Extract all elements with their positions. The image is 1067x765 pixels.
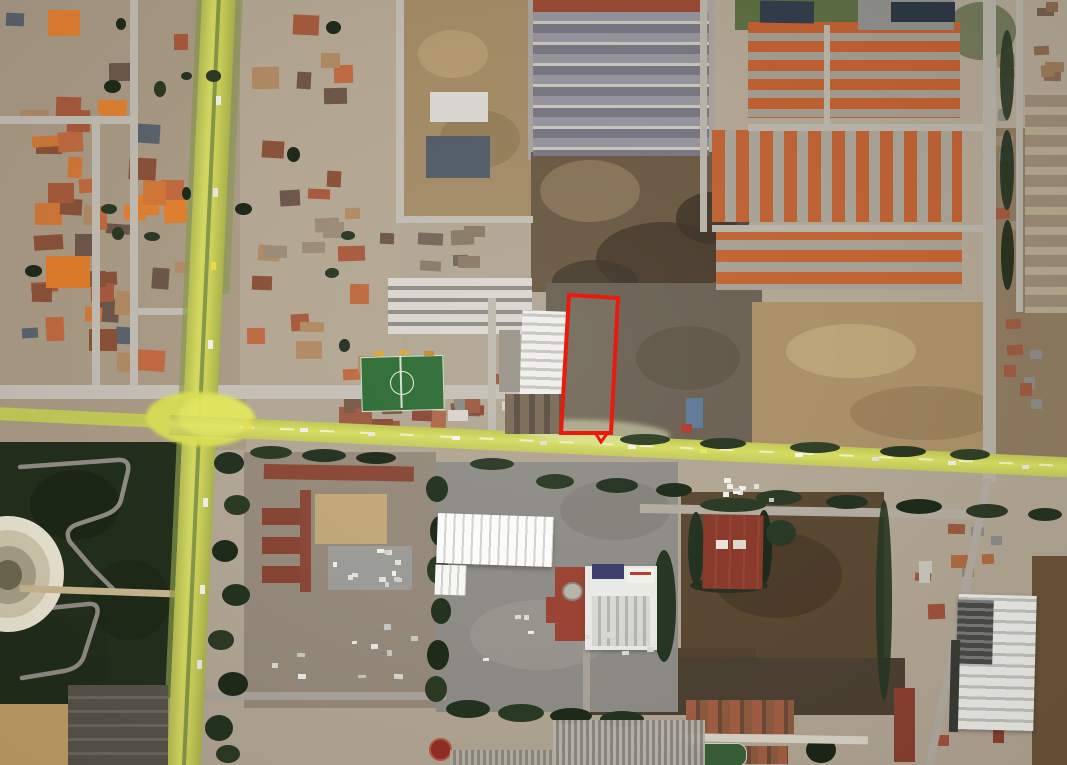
ground-nw <box>0 0 246 450</box>
cars-lot-item <box>607 632 615 638</box>
vehicle <box>243 424 252 429</box>
tree-clump <box>688 512 704 584</box>
tree-clump <box>620 434 670 445</box>
street-e-v1 <box>983 0 996 482</box>
houses-e-2-item <box>918 569 929 583</box>
street-ne-v2 <box>824 25 830 127</box>
blvd-v-east-strip <box>222 0 243 294</box>
trees-nw-scatter-item <box>144 232 160 242</box>
houses-nw-item <box>20 109 49 122</box>
trees-nw-scatter-item <box>339 339 351 352</box>
houses-se-street-item <box>962 635 980 643</box>
houses-nw-item <box>151 267 169 289</box>
houses-e-2-item <box>919 561 932 574</box>
field-se-plowed-ext <box>636 648 756 712</box>
brick-construction-row <box>686 700 794 734</box>
vehicle <box>628 445 636 449</box>
plowed-top-light <box>540 160 640 222</box>
houses-ne-corner-item <box>1045 62 1064 72</box>
tree-clump <box>756 510 772 584</box>
houses-e-1-item <box>1030 399 1041 410</box>
rowhouses-orange-c <box>716 228 962 290</box>
trees-nw-scatter-item <box>116 18 127 30</box>
trees-nw-scatter-item <box>206 70 222 82</box>
street-nc-v <box>396 0 404 222</box>
houses-se-street-item <box>972 707 987 723</box>
store-sign-red-text <box>630 572 651 575</box>
tree-clump <box>446 700 490 718</box>
blvd-v-west-strip <box>161 0 202 765</box>
houses-nw-item <box>89 329 117 351</box>
houses-field-south-item <box>464 226 485 237</box>
cars-school-parking-item <box>395 560 402 565</box>
cars-hacienda-item <box>727 484 733 489</box>
cars-school-parking-item <box>352 572 358 576</box>
trees-nw-scatter-item <box>104 80 122 93</box>
soccer-midline <box>399 357 402 408</box>
warehouse-annex <box>434 564 466 595</box>
houses-ncenter-item <box>280 189 301 206</box>
houses-ne-corner-item <box>1034 45 1049 55</box>
tree-clump <box>700 438 746 449</box>
street-e-v2 <box>1016 0 1023 312</box>
tree-clump <box>250 446 292 459</box>
houses-nw-item <box>35 203 62 225</box>
vehicle <box>540 441 547 445</box>
houses-ncenter-item <box>291 313 309 331</box>
houses-ncenter-item <box>314 218 339 233</box>
field-mid-tan-dark <box>850 386 1000 440</box>
houses-ne-corner-item <box>1040 65 1054 78</box>
street-nw-v2 <box>130 0 138 394</box>
bldg-orange-nw-1 <box>48 10 80 36</box>
houses-nw-item <box>135 349 165 372</box>
houses-e-2-item <box>981 553 993 563</box>
trees-nw-scatter-item <box>181 72 192 81</box>
trees-nw-scatter-item <box>182 187 192 201</box>
houses-ncenter-item <box>324 88 347 104</box>
houses-ncenter-item <box>358 356 380 374</box>
stadium-core <box>0 560 22 590</box>
cars-bottom-lot-item <box>384 624 391 630</box>
houses-nw-item <box>67 109 91 132</box>
sheds-dark <box>505 394 563 434</box>
houses-ncenter-item <box>323 222 344 238</box>
blvd-vertical <box>166 0 236 765</box>
houses-nw-item <box>143 180 166 204</box>
cars-lot-item <box>585 635 591 639</box>
trees-nw-scatter-item <box>25 265 42 277</box>
bldg-orange-nw-2 <box>46 256 90 288</box>
houses-blvd-strip-item <box>385 420 401 432</box>
store-sign-blue <box>592 564 624 579</box>
houses-nw-item <box>22 327 39 338</box>
vehicle <box>948 461 956 465</box>
cars-hacienda-item <box>733 488 740 491</box>
plowed-top-dark2 <box>676 192 750 244</box>
vehicle <box>872 457 879 461</box>
tree-clump <box>427 556 449 584</box>
street-parcel-v <box>488 298 496 436</box>
trees-nw-scatter-item <box>153 81 166 97</box>
school-bar-mid <box>300 490 311 592</box>
vehicle <box>200 585 205 594</box>
forest-shade-2 <box>90 560 170 640</box>
intersection-glow <box>178 396 252 438</box>
houses-nw-item <box>91 288 114 303</box>
tree-clump <box>826 495 868 509</box>
street-s-h <box>100 692 446 700</box>
street-main-gray <box>0 385 532 399</box>
cars-bottom-lot-item <box>394 674 403 680</box>
rowhouses-gray <box>533 12 709 156</box>
cars-school-parking-item <box>394 577 400 581</box>
store-ribs <box>592 596 650 646</box>
tree-clump <box>470 458 514 470</box>
cars-bottom-lot-item <box>297 653 305 657</box>
houses-blvd-strip-item <box>371 418 393 432</box>
bldg-navy-1 <box>760 1 814 24</box>
cars-hacienda-item <box>723 492 729 497</box>
houses-blvd-strip-item <box>412 410 432 422</box>
map-canvas[interactable] <box>0 0 1067 765</box>
cars-hacienda-item <box>754 484 759 489</box>
tree-clump <box>550 708 592 724</box>
houses-ncenter-item <box>343 369 360 380</box>
tree-clump <box>224 495 250 515</box>
houses-nw-item <box>91 206 107 230</box>
blvd-h-left <box>0 407 164 428</box>
houses-field-south-item <box>458 256 480 268</box>
houses-field-south-item <box>453 255 468 266</box>
street-nw-v1 <box>92 116 100 392</box>
soccer-field <box>360 355 444 412</box>
tree-clump <box>1000 30 1014 120</box>
houses-nw-item <box>101 102 126 121</box>
forest-shade-1 <box>30 470 120 540</box>
soccer-goal-mark <box>399 350 409 355</box>
houses-ncenter-item <box>261 140 284 159</box>
tree-clump <box>431 598 451 624</box>
mound-ne <box>946 2 1016 60</box>
cars-hacienda-item <box>769 497 774 502</box>
houses-nw-item <box>133 195 160 215</box>
school-bar <box>262 508 300 525</box>
sheds-sw-item <box>143 740 160 756</box>
store-red-roof <box>555 567 593 641</box>
rowhouses-red-strip <box>533 0 705 12</box>
bldg-red-small <box>681 424 692 433</box>
tree-clump <box>214 452 244 474</box>
houses-nw-item <box>31 282 59 294</box>
houses-ncenter-item <box>308 188 331 199</box>
tree-clump <box>208 630 234 650</box>
tree-clump <box>600 711 644 727</box>
cars-lot-item <box>524 615 529 620</box>
street-nw-h1 <box>0 116 136 124</box>
houses-blvd-strip-item <box>451 402 467 415</box>
vehicle <box>700 449 707 453</box>
houses-near-soccer-item <box>503 381 522 397</box>
plowed-field-top <box>531 152 737 292</box>
tree-clump <box>766 520 796 546</box>
houses-blvd-strip-item <box>338 407 358 425</box>
brick-construction-row <box>738 746 788 764</box>
houses-field-south-item <box>418 232 444 245</box>
street-nw-h2 <box>130 308 208 315</box>
stadium-path <box>20 585 178 598</box>
bldg-dark-sw <box>68 685 168 765</box>
houses-nw-item <box>108 63 137 81</box>
cars-hacienda-item <box>738 490 743 495</box>
field-mid-tan-light <box>786 324 916 378</box>
houses-near-soccer-item <box>454 392 469 408</box>
street-s-v <box>583 640 590 765</box>
sports-field-bottom <box>685 743 747 765</box>
vehicle <box>211 262 216 270</box>
street-se-diag <box>925 478 991 765</box>
houses-nw-item <box>93 298 119 322</box>
houses-nw-item <box>60 199 83 216</box>
parcel-corner-tick <box>596 434 606 442</box>
trees-nw-scatter-item <box>234 203 251 215</box>
vehicle <box>203 498 208 507</box>
cars-hacienda-item <box>724 478 731 483</box>
houses-blvd-strip-item <box>431 411 446 430</box>
market-stalls <box>450 750 554 765</box>
highlighted-parcel[interactable] <box>561 295 618 433</box>
blvd-h-dashes <box>240 426 1067 467</box>
bldg-gray-top <box>858 0 954 30</box>
cars-school-parking-item <box>385 582 390 587</box>
houses-nw-item <box>67 157 83 179</box>
houses-e-st-col-item <box>996 54 1014 68</box>
houses-e-st-col-item <box>1002 69 1015 78</box>
vehicle <box>1022 465 1029 469</box>
vehicle <box>216 96 221 105</box>
houses-nw-item <box>55 96 81 120</box>
houses-nw-item <box>161 180 185 201</box>
houses-ne-corner-item <box>1044 70 1061 81</box>
cars-hacienda-item <box>733 491 740 494</box>
houses-nw-item <box>105 223 129 235</box>
cars-bottom-lot-item <box>298 674 306 679</box>
tree-clump <box>790 442 840 453</box>
houses-se-street-item <box>948 656 963 668</box>
houses-ncenter-item <box>257 244 280 261</box>
vehicle <box>300 428 308 432</box>
vehicle <box>452 436 460 440</box>
houses-nw-item <box>90 271 106 287</box>
cars-lot-item <box>528 631 534 635</box>
school-bar <box>262 537 300 554</box>
tree-clump <box>498 704 544 722</box>
school-bar <box>262 566 300 583</box>
cars-school-parking-item <box>384 550 390 554</box>
houses-se-street-item <box>958 713 970 727</box>
bldg-navy-2 <box>891 2 955 22</box>
houses-ncenter-item <box>252 66 279 88</box>
cars-school-parking-item <box>377 549 384 554</box>
park-ne <box>735 0 913 30</box>
soccer-goal-mark <box>424 351 434 356</box>
houses-near-soccer-item <box>465 397 481 413</box>
houses-blvd-strip-item <box>344 396 366 414</box>
houses-ncenter-item <box>302 242 325 253</box>
tree-clump <box>430 516 450 546</box>
tree-clump <box>222 584 250 606</box>
houses-ncenter-item <box>345 208 360 220</box>
trees-nw-scatter-item <box>101 204 117 215</box>
trees-nw-scatter-item <box>341 230 355 239</box>
houses-blvd-strip-item <box>464 404 484 415</box>
field-se-dark-blotch <box>712 532 842 618</box>
tree-clump <box>690 578 768 593</box>
screenshot-stage <box>0 0 1067 765</box>
houses-near-soccer-item <box>455 403 470 418</box>
houses-field-south-item <box>419 260 441 272</box>
cars-bottom-lot-item <box>411 636 418 641</box>
houses-e-st-col-item <box>1005 221 1016 230</box>
bldg-brick-tall <box>894 688 915 762</box>
store-sign-white <box>627 568 654 583</box>
street-nc-h <box>396 216 533 223</box>
cars-hacienda-item <box>739 486 746 490</box>
vehicle <box>368 432 375 436</box>
houses-blvd-strip-item <box>382 403 402 414</box>
tree-clump <box>876 500 892 700</box>
bldg-blue-roof-small <box>686 398 703 428</box>
blvd-v-median <box>181 0 221 765</box>
tree-clump <box>302 449 346 462</box>
houses-nw-item <box>98 282 114 297</box>
strip-dark-bottom <box>553 658 905 715</box>
tree-clump <box>536 474 574 489</box>
houses-ncenter-item <box>321 53 340 68</box>
houses-e-st-col-item <box>999 151 1011 162</box>
trees-nw-scatter-item <box>325 267 339 278</box>
houses-e-2-item <box>971 527 984 536</box>
sheds-sw-item <box>116 716 133 729</box>
cars-school-parking-item <box>386 550 392 555</box>
street-ne-h2 <box>712 225 988 232</box>
houses-near-soccer-item <box>502 400 520 410</box>
houses-near-soccer-item <box>448 410 468 421</box>
trees-nw-scatter-item <box>112 227 124 240</box>
tree-clump <box>426 476 448 502</box>
houses-e-2-item <box>915 572 932 581</box>
houses-se-street-item <box>959 714 978 725</box>
cars-school-parking-item <box>348 575 353 580</box>
houses-nw-item <box>57 132 83 153</box>
cars-bottom-lot-item <box>352 641 357 644</box>
houses-nw-item <box>174 34 188 50</box>
warehouse-se-edge <box>949 640 960 732</box>
water-tank <box>429 738 452 761</box>
houses-nw-item <box>32 284 53 302</box>
houses-nw-item <box>116 327 132 345</box>
houses-ncenter-item <box>299 322 324 333</box>
soccer-goal-mark <box>374 351 384 356</box>
houses-nw-item <box>32 135 60 147</box>
houses-field-south-item <box>451 229 474 245</box>
houses-se-street-item <box>957 646 969 657</box>
houses-se-street-item <box>933 735 949 746</box>
rowhouses-right-col <box>1025 95 1067 313</box>
cars-lot-item <box>647 647 654 653</box>
cars-bottom-lot-item <box>272 663 278 668</box>
tree-clump <box>216 745 240 763</box>
parcel-overlay <box>0 0 1067 765</box>
trail-upper-loop <box>20 460 128 592</box>
forest-park-ext <box>0 616 106 704</box>
houses-e-2-item <box>962 567 974 577</box>
houses-e-2-item <box>951 555 968 569</box>
houses-nw-item <box>84 205 100 226</box>
cars-school-parking-item <box>392 571 396 576</box>
tree-clump <box>756 490 802 505</box>
white-path-bottom <box>676 733 868 744</box>
bldg-white-nw <box>430 92 488 122</box>
houses-e-1-item <box>1004 364 1017 377</box>
houses-nw-item <box>124 204 147 220</box>
houses-nw-item <box>5 12 24 26</box>
lot-mottle-2 <box>560 480 670 540</box>
houses-nw-item <box>116 352 139 372</box>
houses-e-1-item <box>1020 382 1033 396</box>
houses-ne-corner-item <box>1046 2 1058 12</box>
vehicle <box>213 188 218 197</box>
hacienda-skylight <box>733 540 746 549</box>
tree-clump <box>1001 220 1014 290</box>
cars-lot-item <box>515 614 521 618</box>
houses-nw-item <box>98 100 127 115</box>
houses-ncenter-item <box>263 245 287 257</box>
blvd-h-main <box>169 415 1067 477</box>
tree-clump <box>700 498 766 512</box>
houses-se-street-item <box>973 618 993 633</box>
cars-bottom-lot-item <box>358 674 366 678</box>
hacienda-skylight <box>716 540 728 549</box>
tree-clump <box>880 446 926 457</box>
soccer-center-circle <box>390 371 414 395</box>
plowed-top-dark1 <box>596 222 732 294</box>
houses-ncenter-item <box>252 275 272 290</box>
houses-nw-item <box>175 262 188 273</box>
field-top-tan-dark <box>440 110 520 168</box>
intersection-blob <box>145 389 258 449</box>
rowhouses-orange-a <box>748 22 960 118</box>
houses-ncenter-item <box>338 246 365 261</box>
street-ne-h1 <box>748 124 988 131</box>
houses-e-1-item <box>1006 318 1021 329</box>
houses-e-2-item <box>948 524 965 534</box>
vehicle <box>208 340 213 349</box>
houses-nw-item <box>96 271 118 285</box>
houses-ncenter-item <box>296 341 322 359</box>
houses-ncenter-item <box>247 328 265 344</box>
ground-base <box>0 0 1067 765</box>
cars-school-parking-item <box>379 577 386 582</box>
houses-nw-item <box>79 178 96 193</box>
bldg-blue-nw <box>426 136 490 178</box>
cars-school-parking-item <box>333 562 337 567</box>
tree-clump <box>205 715 233 741</box>
school-parking <box>328 546 412 590</box>
cars-bottom-lot-item <box>387 649 393 655</box>
houses-nw-item <box>85 306 103 322</box>
houses-ncenter-item <box>296 72 311 89</box>
